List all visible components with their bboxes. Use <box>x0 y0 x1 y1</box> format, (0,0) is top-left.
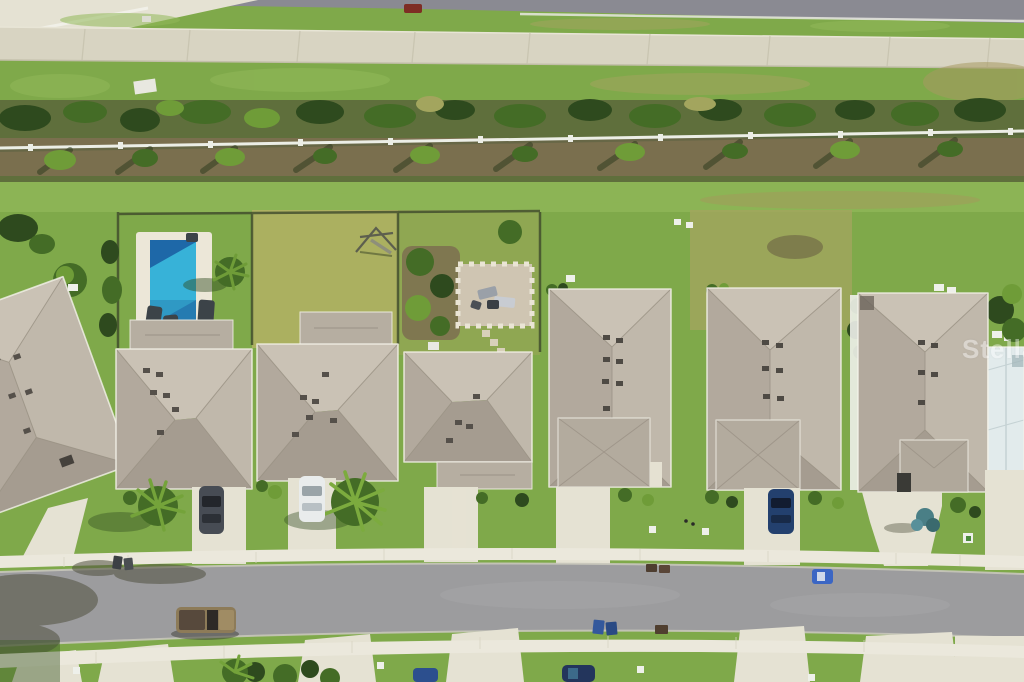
entry-shadow <box>897 473 911 493</box>
ac-unit <box>428 342 439 350</box>
pickup-truck <box>171 607 239 640</box>
dark-gray-car <box>199 486 224 534</box>
blue-car-bottom <box>413 668 438 682</box>
side-walkway <box>850 295 858 490</box>
navy-car <box>768 489 794 534</box>
house-2-roof <box>116 320 252 489</box>
aerial-scene <box>0 0 1024 682</box>
common-grass-strip <box>0 182 1024 212</box>
house-7-roof <box>858 293 988 493</box>
house-5-roof <box>549 289 671 487</box>
aerial-photo-canvas: Stellar MLS <box>0 0 1024 682</box>
mls-watermark: Stellar MLS <box>962 334 1024 365</box>
white-car <box>299 476 325 522</box>
blue-car-street <box>812 569 833 584</box>
screen-enclosure-roof <box>988 347 1024 490</box>
landscape-buffer <box>0 96 1024 182</box>
car-on-main-road <box>404 4 422 13</box>
dark-blue-car-bottom <box>562 665 595 682</box>
house-6-roof <box>707 288 841 490</box>
